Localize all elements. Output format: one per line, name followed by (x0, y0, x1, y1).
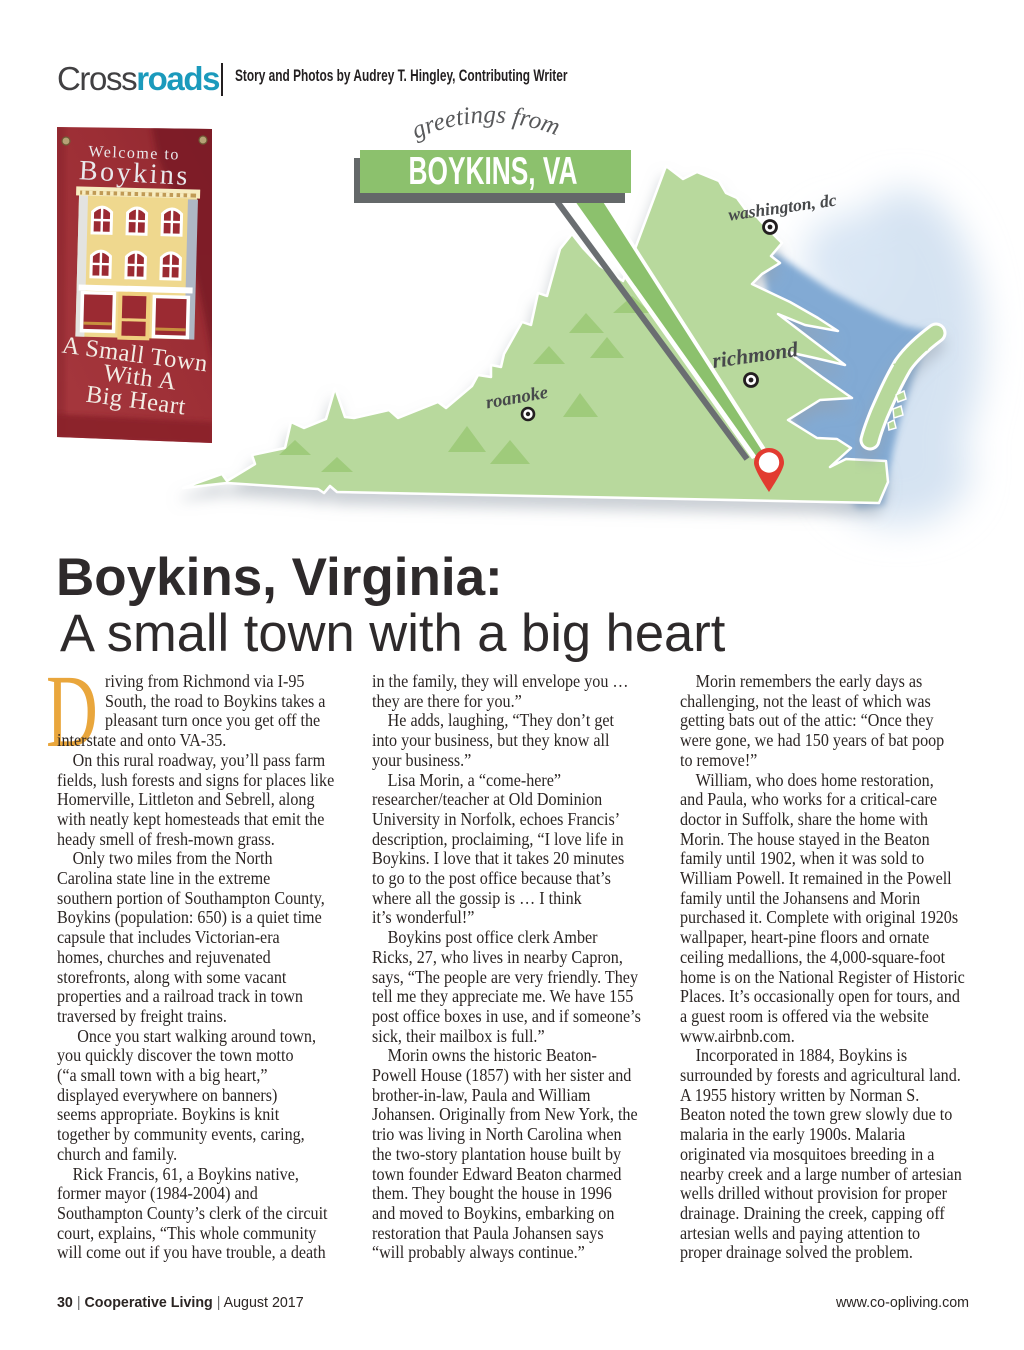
svg-text:greetings from: greetings from (408, 101, 564, 144)
svg-text:BOYKINS, VA: BOYKINS, VA (409, 150, 578, 193)
svg-text:washington, dc: washington, dc (727, 190, 838, 225)
